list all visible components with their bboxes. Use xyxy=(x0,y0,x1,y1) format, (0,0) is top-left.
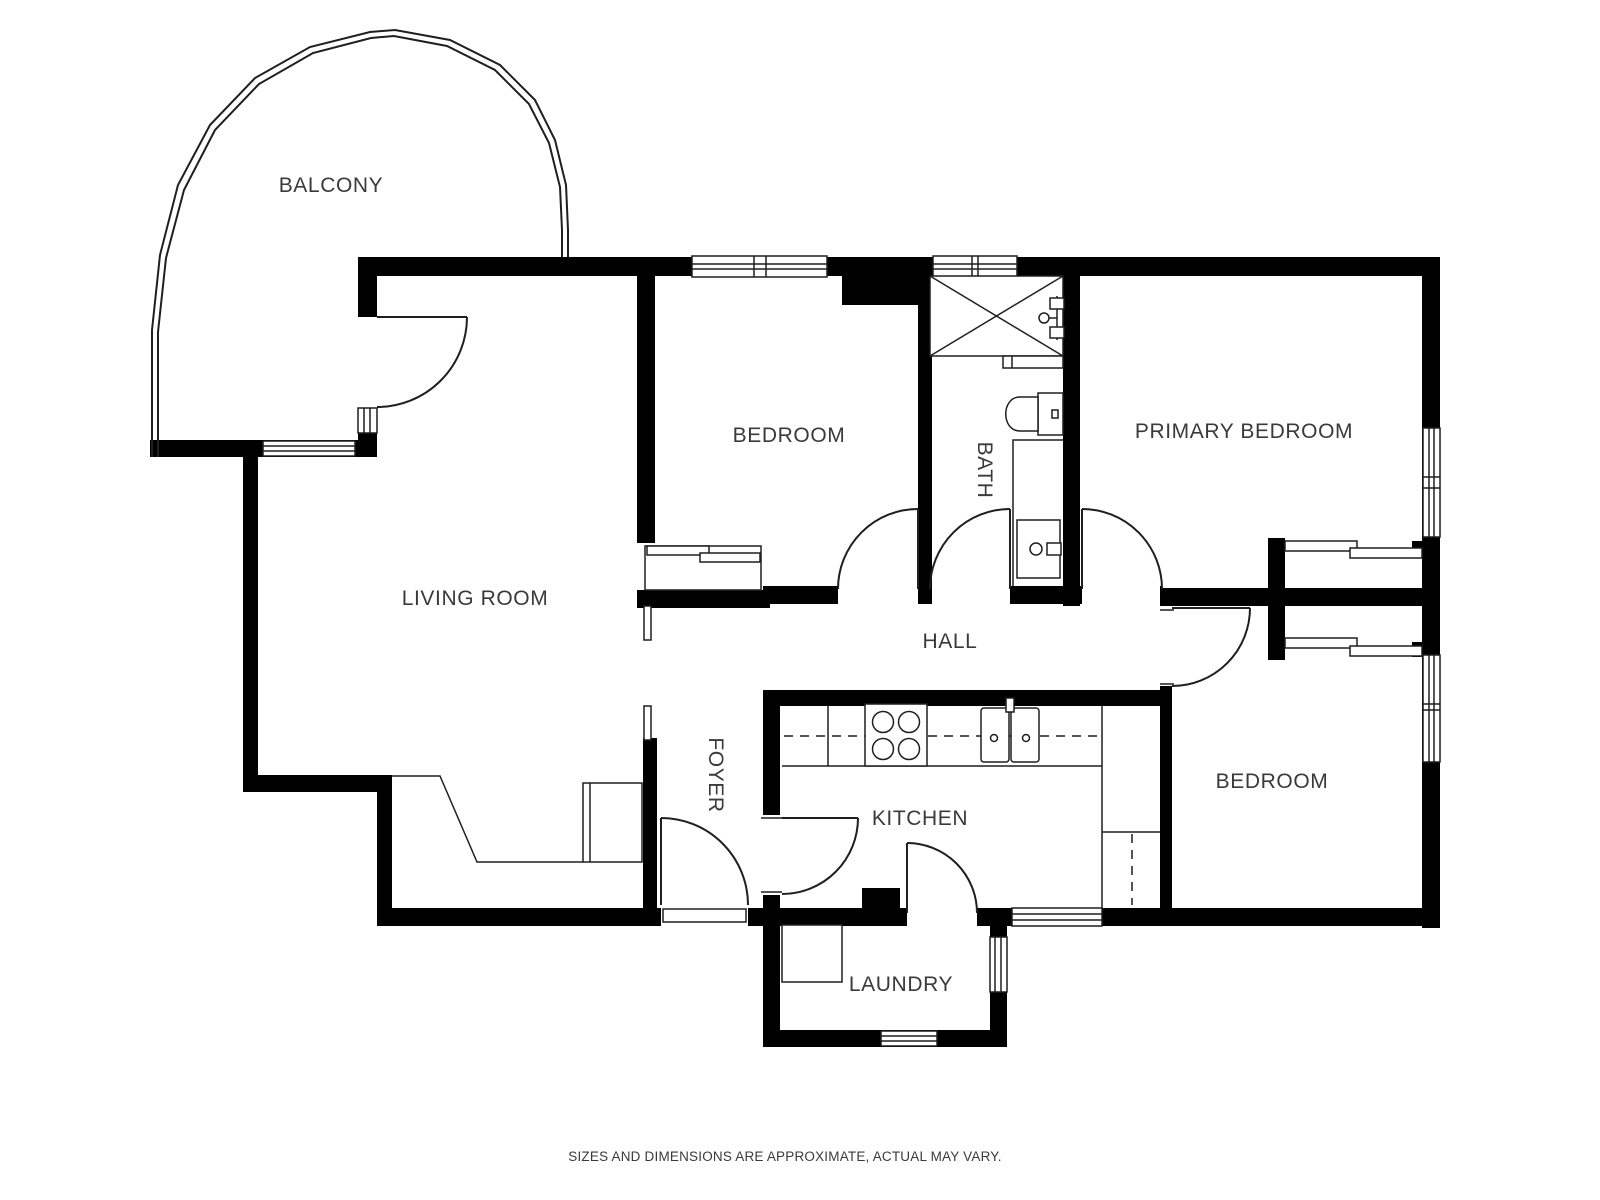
window-primary-right xyxy=(1423,428,1440,537)
primary-bedroom-door xyxy=(1082,509,1162,589)
label-primary-bedroom: PRIMARY BEDROOM xyxy=(1135,420,1353,443)
room-labels: BALCONY LIVING ROOM BEDROOM BATH PRIMARY… xyxy=(279,174,1353,996)
vanity-sink xyxy=(1013,440,1063,586)
balcony-railing xyxy=(152,30,568,457)
label-foyer: FOYER xyxy=(704,737,727,812)
shower xyxy=(930,276,1063,356)
kitchen-counter xyxy=(782,706,1160,908)
window-bedroom2-right xyxy=(1423,655,1440,762)
sliding-closet-bedroom xyxy=(645,546,761,590)
window-balcony-door-side xyxy=(358,408,377,433)
entry-door xyxy=(661,818,748,905)
foyer-opening-stubs xyxy=(644,606,651,740)
toilet xyxy=(1006,393,1063,435)
sliding-closet-bedroom2 xyxy=(1285,638,1422,656)
coat-closet xyxy=(583,783,642,862)
utility-closet xyxy=(782,925,842,982)
kitchen-door xyxy=(782,818,858,894)
label-laundry: LAUNDRY xyxy=(849,973,953,996)
floor-plan-page: BALCONY LIVING ROOM BEDROOM BATH PRIMARY… xyxy=(0,0,1600,1200)
bath-fixtures xyxy=(930,276,1064,586)
disclaimer-text: SIZES AND DIMENSIONS ARE APPROXIMATE, AC… xyxy=(568,1149,1001,1164)
label-hall: HALL xyxy=(923,630,978,653)
angled-half-wall xyxy=(392,776,583,862)
label-bath: BATH xyxy=(973,442,996,499)
kitchen-sink xyxy=(981,698,1039,762)
shower-bench xyxy=(1003,356,1063,368)
label-kitchen: KITCHEN xyxy=(872,807,968,830)
bath-door xyxy=(930,509,1010,589)
label-bedroom2: BEDROOM xyxy=(1216,770,1329,793)
window-kitchen-bottom xyxy=(1012,908,1102,926)
window-bedroom-top xyxy=(692,256,827,277)
stove xyxy=(865,704,927,766)
doors xyxy=(377,317,1250,913)
windows xyxy=(263,256,1440,1046)
floor-plan: BALCONY LIVING ROOM BEDROOM BATH PRIMARY… xyxy=(0,0,1600,1200)
laundry-door xyxy=(907,843,977,913)
label-living-room: LIVING ROOM xyxy=(402,587,549,610)
balcony-door xyxy=(377,317,467,407)
sliding-closet-primary xyxy=(1285,541,1422,558)
kitchen-fixtures xyxy=(782,698,1160,908)
window-balcony-wall xyxy=(263,441,355,456)
bedroom2-door xyxy=(1172,608,1250,686)
window-bath-top xyxy=(933,256,1017,277)
label-balcony: BALCONY xyxy=(279,174,384,197)
bedroom-door xyxy=(838,509,918,589)
window-laundry-bottom xyxy=(881,1031,937,1046)
label-bedroom: BEDROOM xyxy=(733,424,846,447)
window-laundry-right xyxy=(990,937,1007,992)
